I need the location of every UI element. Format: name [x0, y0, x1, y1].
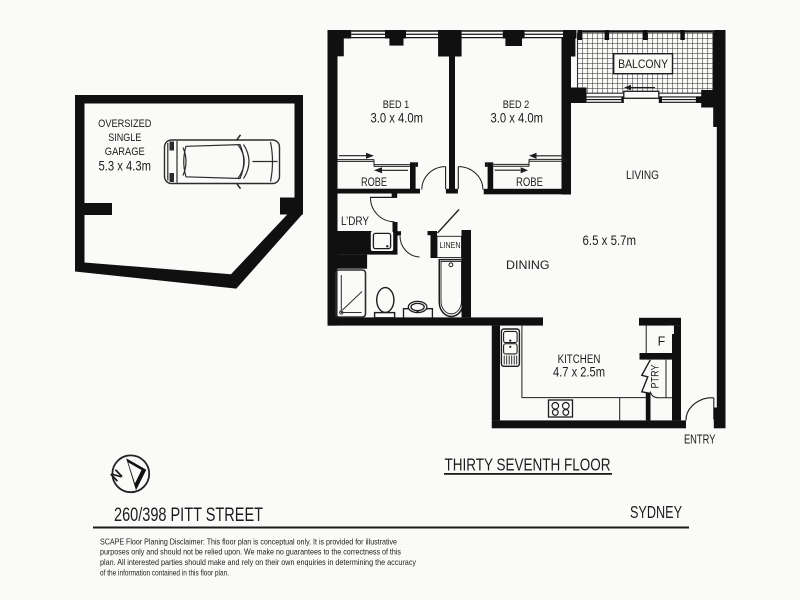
svg-text:of the information contained i: of the information contained in this flo… [100, 568, 229, 578]
svg-text:ROBE: ROBE [516, 177, 543, 189]
svg-text:THIRTY SEVENTH FLOOR: THIRTY SEVENTH FLOOR [445, 454, 611, 474]
svg-text:LINEN: LINEN [440, 240, 461, 250]
svg-text:LIVING: LIVING [626, 168, 659, 182]
svg-text:BED 2: BED 2 [503, 99, 530, 111]
svg-text:BALCONY: BALCONY [618, 57, 668, 71]
svg-text:SYDNEY: SYDNEY [630, 502, 682, 522]
svg-text:260/398 PITT STREET: 260/398 PITT STREET [114, 504, 263, 526]
svg-text:4.7 x 2.5m: 4.7 x 2.5m [553, 365, 605, 380]
svg-text:6.5 x 5.7m: 6.5 x 5.7m [583, 233, 637, 248]
svg-text:plan. All interested parties s: plan. All interested parties should make… [100, 557, 417, 567]
svg-text:OVERSIZED: OVERSIZED [98, 118, 151, 130]
svg-text:BED 1: BED 1 [383, 99, 410, 111]
svg-text:3.0 x 4.0m: 3.0 x 4.0m [491, 111, 544, 126]
svg-text:purposes only and should not b: purposes only and should not be relied u… [100, 547, 401, 557]
svg-text:3.0 x 4.0m: 3.0 x 4.0m [371, 111, 424, 126]
svg-text:5.3 x 4.3m: 5.3 x 4.3m [99, 158, 152, 173]
svg-text:L’DRY: L’DRY [341, 216, 369, 228]
svg-text:SINGLE: SINGLE [108, 132, 141, 144]
svg-text:DINING: DINING [506, 258, 550, 272]
svg-text:F: F [658, 334, 666, 348]
svg-text:SCAPE Floor Planing Disclaimer: SCAPE Floor Planing Disclaimer: This flo… [100, 536, 397, 546]
svg-text:ROBE: ROBE [361, 177, 387, 189]
svg-text:PTRY: PTRY [650, 364, 662, 389]
svg-text:ENTRY: ENTRY [684, 432, 716, 447]
svg-text:GARAGE: GARAGE [105, 146, 145, 158]
